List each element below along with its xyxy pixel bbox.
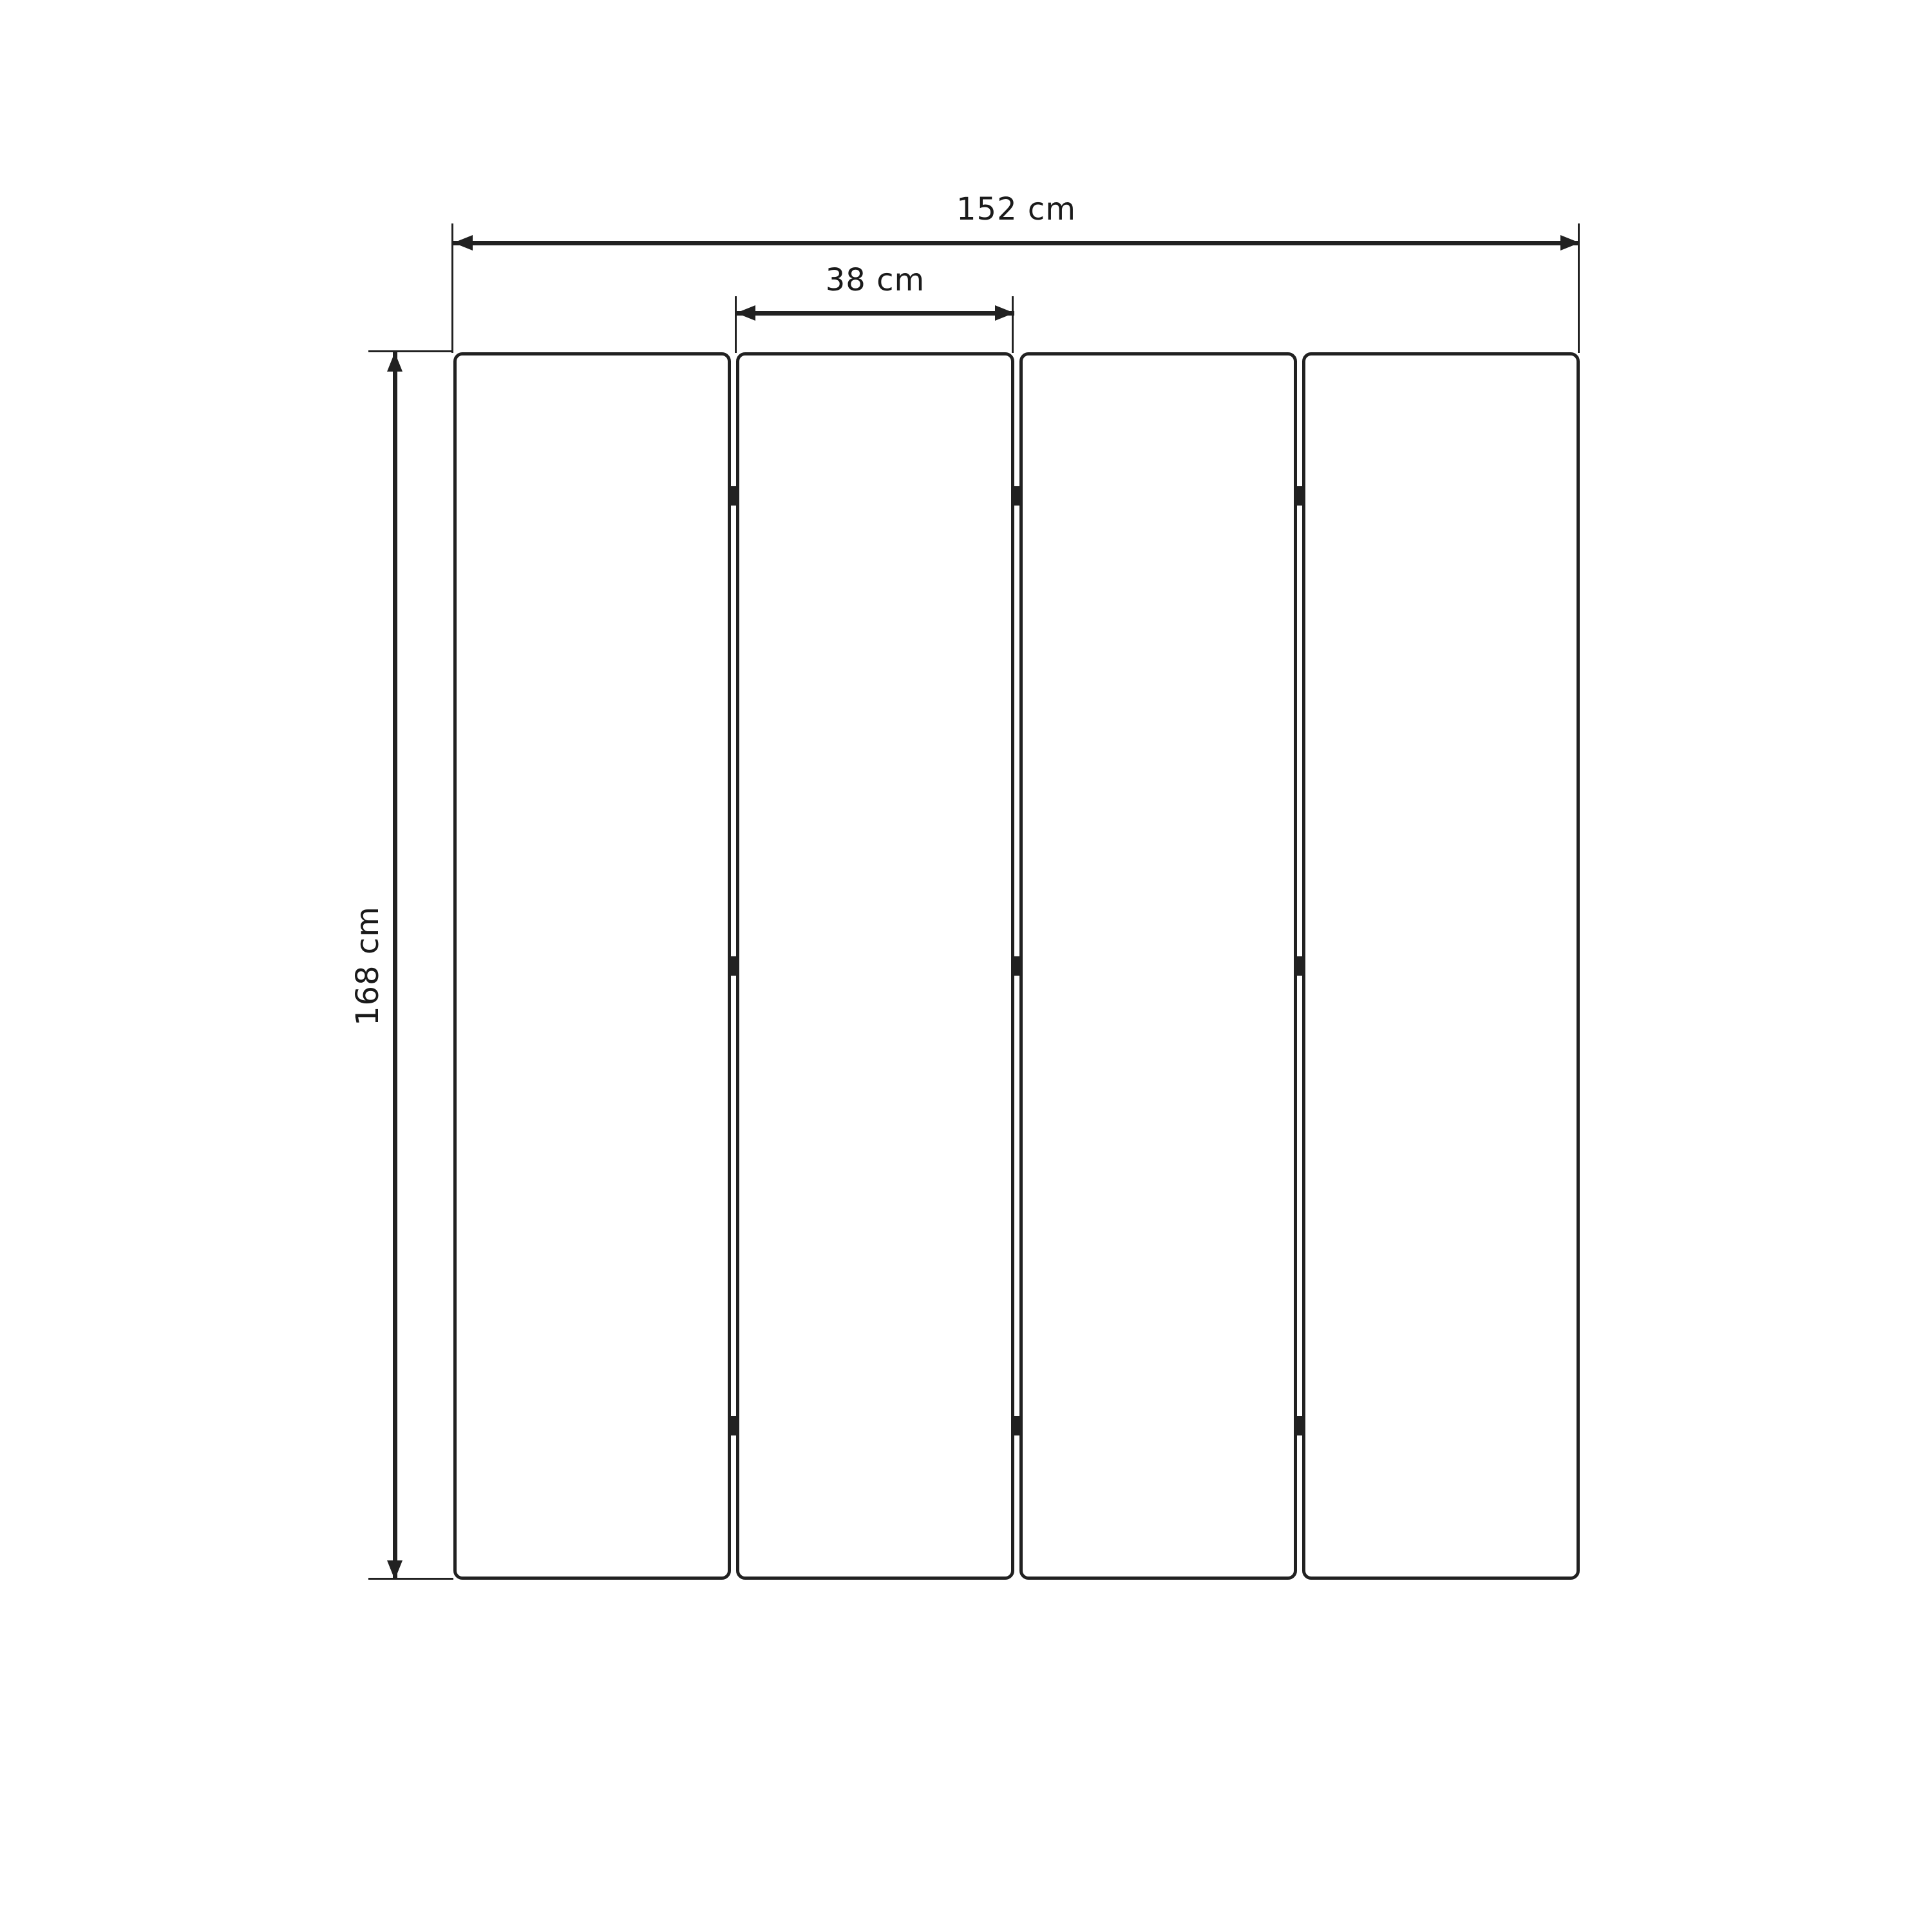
hinge-gap1-row2 <box>729 956 738 976</box>
panel-2 <box>736 352 1014 1580</box>
extension-line <box>368 1578 453 1580</box>
page: { "diagram": { "panel_count": 4, "hinge_… <box>0 0 1932 1932</box>
hinge-gap1-row3 <box>729 1416 738 1435</box>
room-divider-dimension-diagram: 152 cm 38 cm 168 cm <box>0 0 1932 1932</box>
arrow-left-icon <box>453 235 473 251</box>
arrow-up-icon <box>387 352 402 372</box>
height-value: 168 cm <box>352 869 383 1063</box>
panel-width-value: 38 cm <box>779 265 972 296</box>
dimension-line <box>736 311 1014 316</box>
dimension-line <box>453 241 1580 245</box>
hinge-gap2-row2 <box>1012 956 1021 976</box>
panel-4 <box>1302 352 1580 1580</box>
arrow-right-icon <box>995 305 1014 321</box>
hinge-gap3-row1 <box>1295 486 1304 506</box>
arrow-down-icon <box>387 1560 402 1580</box>
hinge-gap3-row2 <box>1295 956 1304 976</box>
hinge-gap1-row1 <box>729 486 738 506</box>
dimension-line <box>393 352 397 1580</box>
total-width-value: 152 cm <box>887 194 1145 225</box>
extension-line <box>368 350 453 352</box>
hinge-gap2-row1 <box>1012 486 1021 506</box>
arrow-right-icon <box>1560 235 1580 251</box>
panel-3 <box>1019 352 1297 1580</box>
hinge-gap2-row3 <box>1012 1416 1021 1435</box>
hinge-gap3-row3 <box>1295 1416 1304 1435</box>
panel-1 <box>453 352 731 1580</box>
arrow-left-icon <box>736 305 755 321</box>
